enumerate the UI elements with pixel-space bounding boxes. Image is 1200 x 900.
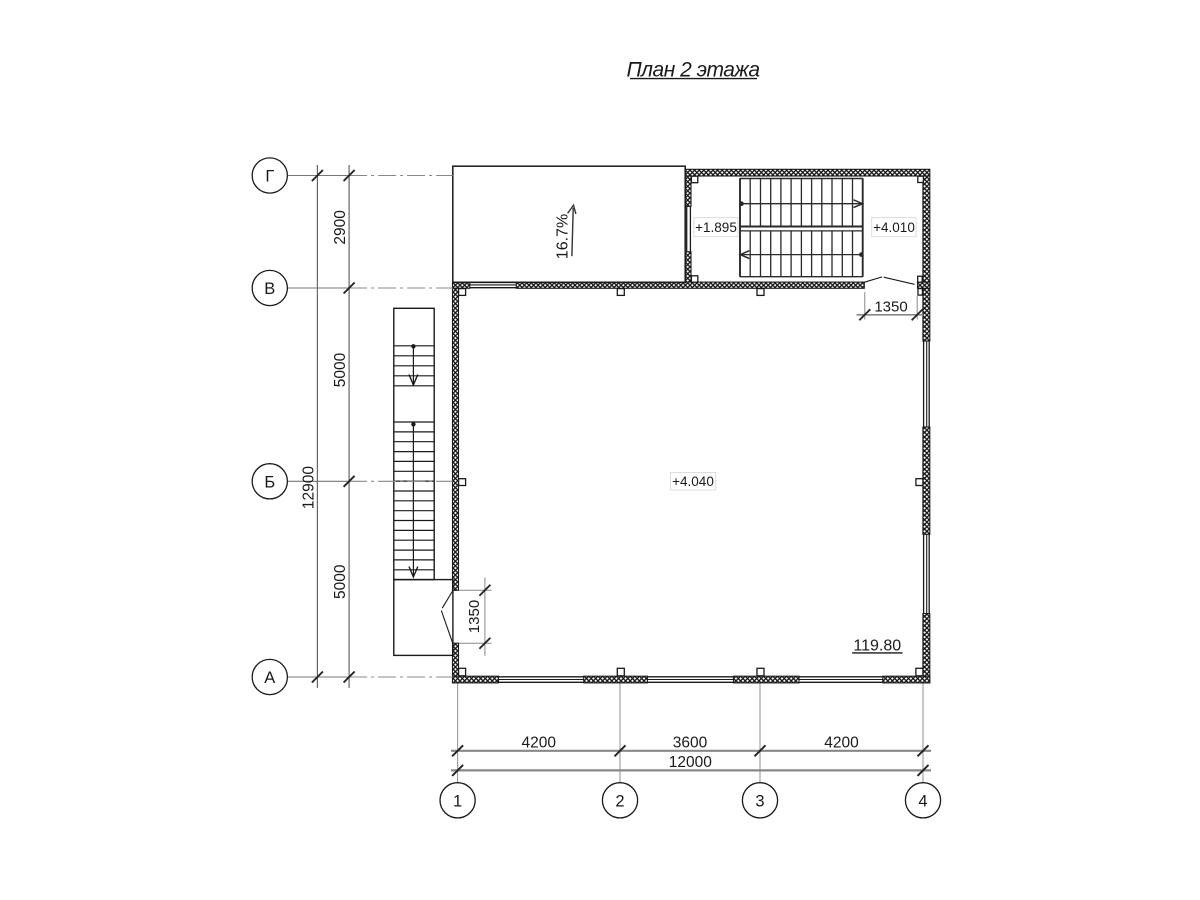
svg-text:1350: 1350 <box>874 299 907 316</box>
svg-text:Б: Б <box>264 473 275 491</box>
svg-text:119.80: 119.80 <box>853 637 901 654</box>
svg-text:2900: 2900 <box>332 210 349 245</box>
svg-text:В: В <box>264 280 275 298</box>
svg-text:3: 3 <box>755 792 764 810</box>
svg-text:Г: Г <box>265 168 274 186</box>
svg-text:16.7%: 16.7% <box>555 214 572 259</box>
svg-text:4200: 4200 <box>824 735 859 752</box>
svg-text:2: 2 <box>615 792 624 810</box>
svg-text:+4.010: +4.010 <box>873 220 915 235</box>
svg-text:12900: 12900 <box>300 466 317 509</box>
svg-text:1: 1 <box>453 792 462 810</box>
svg-text:4200: 4200 <box>522 735 557 752</box>
svg-text:5000: 5000 <box>332 564 349 599</box>
svg-text:+1.895: +1.895 <box>695 220 737 235</box>
svg-text:3600: 3600 <box>673 735 708 752</box>
svg-text:1350: 1350 <box>466 600 483 633</box>
svg-text:5000: 5000 <box>332 352 349 387</box>
svg-text:12000: 12000 <box>669 754 712 771</box>
svg-text:+4.040: +4.040 <box>672 474 714 489</box>
svg-text:4: 4 <box>918 792 927 810</box>
svg-text:А: А <box>264 669 275 687</box>
